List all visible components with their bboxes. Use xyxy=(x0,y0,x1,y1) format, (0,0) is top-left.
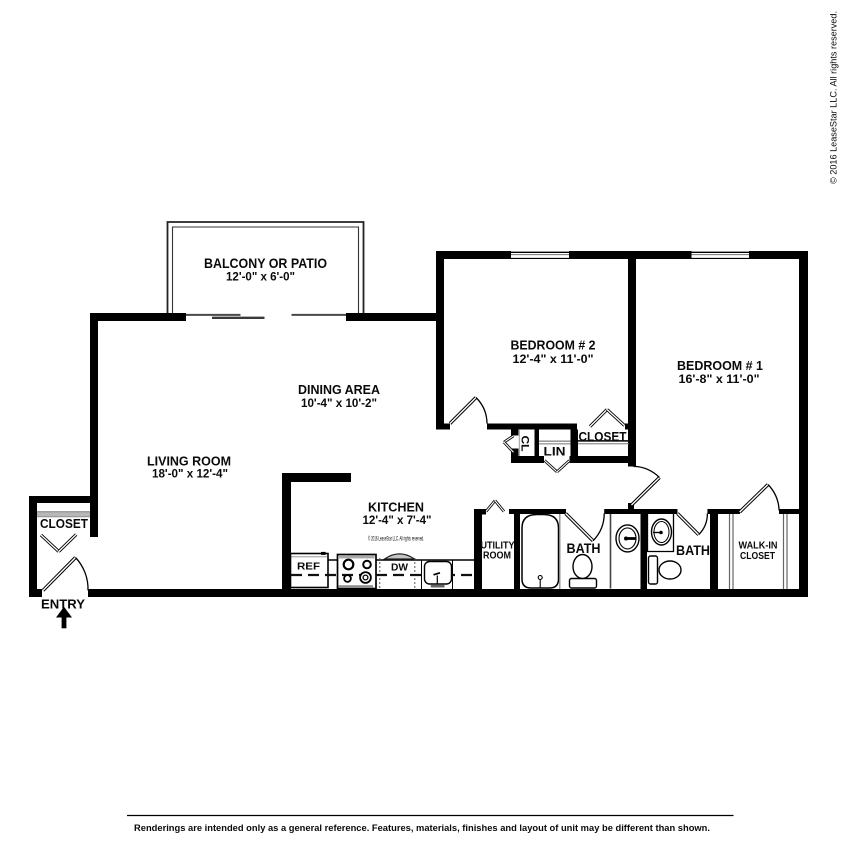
svg-text:BATH: BATH xyxy=(567,541,601,556)
svg-text:CLOSET: CLOSET xyxy=(740,551,775,562)
svg-text:12'-0" x 6'-0": 12'-0" x 6'-0" xyxy=(226,270,295,284)
svg-text:WALK-IN: WALK-IN xyxy=(739,541,778,552)
svg-text:CLOSET: CLOSET xyxy=(579,429,627,444)
svg-text:DINING AREA: DINING AREA xyxy=(298,382,381,397)
svg-text:CL: CL xyxy=(519,436,531,452)
svg-text:12'-4" x 11'-0": 12'-4" x 11'-0" xyxy=(513,352,594,366)
svg-text:10'-4" x 10'-2": 10'-4" x 10'-2" xyxy=(301,396,377,410)
svg-text:© 2016 LeaseStar LLC. All righ: © 2016 LeaseStar LLC. All rights reserve… xyxy=(829,11,840,184)
svg-text:BEDROOM # 1: BEDROOM # 1 xyxy=(677,358,763,373)
svg-text:ROOM: ROOM xyxy=(483,551,511,562)
svg-text:18'-0" x 12'-4": 18'-0" x 12'-4" xyxy=(152,467,228,481)
svg-text:LIN: LIN xyxy=(544,445,566,459)
svg-text:DW: DW xyxy=(391,562,408,574)
svg-text:12'-4" x 7'-4": 12'-4" x 7'-4" xyxy=(363,513,432,527)
svg-text:BATH: BATH xyxy=(676,542,710,558)
svg-text:REF: REF xyxy=(297,561,321,573)
svg-text:BEDROOM # 2: BEDROOM # 2 xyxy=(511,338,596,353)
svg-text:© 2016 LeaseStar LLC. All righ: © 2016 LeaseStar LLC. All rights reserve… xyxy=(368,536,424,543)
svg-text:Renderings are intended only a: Renderings are intended only as a genera… xyxy=(134,823,710,834)
svg-text:16'-8" x 11'-0": 16'-8" x 11'-0" xyxy=(679,372,760,386)
svg-text:CLOSET: CLOSET xyxy=(40,516,88,531)
